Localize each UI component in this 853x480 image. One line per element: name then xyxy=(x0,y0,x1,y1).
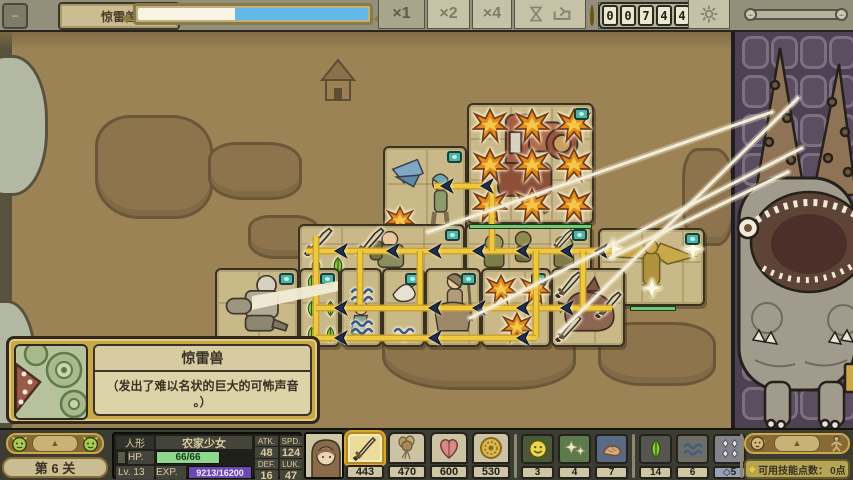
sword-icon xyxy=(555,314,583,342)
bouquet-icon xyxy=(394,435,420,461)
stage-label: 第 6 关 xyxy=(2,457,108,478)
luk-value: 47 xyxy=(280,470,302,480)
mech-block[interactable] xyxy=(467,103,594,224)
combo-arrow-icon xyxy=(424,328,444,348)
token-smiley xyxy=(521,434,554,464)
hp-value: 66/66 xyxy=(156,451,220,464)
game-screen: − 惊雷兽 ◆ ◆ ×1 ×2 ×4 00744 − − xyxy=(0,0,853,480)
hp-remaining-segment xyxy=(235,8,368,20)
sword-icon xyxy=(595,290,623,318)
wave-icon xyxy=(682,438,704,460)
enemy-tooltip: 惊雷兽 （发出了难以名状的巨大的可怖声音 。） xyxy=(6,336,320,424)
sword-icon xyxy=(352,435,378,461)
worm-icon xyxy=(600,437,624,461)
medal-icon xyxy=(478,435,504,461)
monkey-face-icon xyxy=(749,435,766,452)
lock-badge-icon xyxy=(574,108,589,120)
top-bar: − 惊雷兽 ◆ ◆ ×1 ×2 ×4 00744 − − xyxy=(0,0,853,32)
medal-count: 530 xyxy=(472,465,510,479)
combo-arrow-icon xyxy=(476,176,496,196)
hut-structure xyxy=(318,58,358,106)
coin-counter: 00744 xyxy=(598,2,686,29)
minimize-button[interactable]: − xyxy=(2,3,28,29)
ally-switch-plaque: ▲ xyxy=(744,433,850,454)
lock-badge-icon xyxy=(461,273,476,285)
slider-knob-right[interactable]: − xyxy=(835,8,848,21)
gear-icon xyxy=(699,4,719,24)
swan-block[interactable] xyxy=(382,268,425,347)
hp-elapsed-segment xyxy=(138,8,235,20)
status-chip xyxy=(118,452,125,463)
token-worm xyxy=(595,434,628,464)
demon-face-icon xyxy=(82,435,99,452)
map-shade xyxy=(0,30,853,50)
circle-minus-icon: − xyxy=(11,9,18,23)
luk-label: LUK. xyxy=(280,459,302,469)
sparkle-icon xyxy=(563,437,587,461)
burst-icon xyxy=(472,108,508,144)
enemy-switch-plaque: ▲ xyxy=(6,433,104,454)
token-wave xyxy=(676,434,709,464)
enemy-portrait xyxy=(14,344,88,420)
block-hp-bar xyxy=(630,306,676,311)
diamond-icon: ◆ xyxy=(748,464,756,475)
lock-badge-icon xyxy=(531,273,546,285)
bottom-bar: ▲ 第 6 关 人形 农家少女 HP. 66/66 Lv. 13 EXP. 92… xyxy=(0,428,853,480)
skill-points-button[interactable]: ◆ 可用技能点数： 0点 xyxy=(744,459,850,479)
burst-icon xyxy=(556,188,592,224)
mesa-terrain xyxy=(95,115,213,219)
smiley-count: 3 xyxy=(521,466,554,479)
token-sparkle xyxy=(558,434,591,464)
sword-count: 443 xyxy=(346,465,384,479)
bouquet-count: 470 xyxy=(388,465,426,479)
seed-icon xyxy=(303,274,320,291)
divider xyxy=(514,434,517,478)
combo-arrow-icon xyxy=(330,241,350,261)
lock-badge-icon xyxy=(405,273,420,285)
spd-label: SPD. xyxy=(280,436,302,446)
worm-count: 7 xyxy=(595,466,628,479)
hp-label: HP. xyxy=(128,451,154,464)
combo-arrow-icon xyxy=(512,241,532,261)
combo-arrow-icon xyxy=(330,298,350,318)
lock-badge-icon xyxy=(445,229,460,241)
enemy-panel xyxy=(731,30,853,428)
auto-repeat-button[interactable] xyxy=(514,0,586,29)
monster-thunder-beast[interactable] xyxy=(735,30,853,428)
level-value: Lv. 13 xyxy=(116,466,154,479)
wave-icon xyxy=(392,322,416,346)
expand-enemy-info-button[interactable]: ▲ xyxy=(32,435,78,452)
wave-icon xyxy=(349,314,375,340)
enemy-tooltip-body: 惊雷兽 （发出了难以名状的巨大的可怖声音 。） xyxy=(93,344,312,416)
burst-icon xyxy=(556,148,592,184)
sword-icon xyxy=(555,270,583,298)
combo-arrow-icon xyxy=(424,241,444,261)
speed-x2-button[interactable]: ×2 xyxy=(427,0,470,29)
combo-arrow-icon xyxy=(330,328,350,348)
coin-digit: 4 xyxy=(656,5,672,26)
heart-count: 600 xyxy=(430,465,468,479)
combo-arrow-icon xyxy=(436,176,456,196)
coin-icon xyxy=(590,5,594,26)
wave-count: 6 xyxy=(676,466,709,479)
combo-arrow-icon xyxy=(512,298,532,318)
star-icon xyxy=(642,278,662,298)
water-terrain xyxy=(0,55,48,196)
item-medal-button[interactable] xyxy=(472,432,510,464)
combo-arrow-icon xyxy=(382,241,402,261)
divider xyxy=(632,434,635,478)
combo-arrow-icon xyxy=(590,241,610,261)
speed-x4-button[interactable]: ×4 xyxy=(472,0,512,29)
combo-arrow-icon xyxy=(556,298,576,318)
slider-knob-left[interactable]: − xyxy=(744,8,757,21)
item-heart-button[interactable] xyxy=(430,432,468,464)
def-value: 16 xyxy=(255,470,278,480)
enemy-tooltip-desc: （发出了难以名状的巨大的可怖声音 。） xyxy=(95,372,310,410)
heart-icon xyxy=(436,435,462,461)
diamond-deco-icon: ◆ xyxy=(122,10,132,26)
lock-badge-icon xyxy=(320,273,335,285)
character-name: 农家少女 xyxy=(156,436,252,449)
lock-badge-icon xyxy=(447,151,462,163)
burst-icon xyxy=(514,188,550,224)
loop-icon xyxy=(551,5,573,23)
smiley-icon xyxy=(526,437,550,461)
combo-arrow-icon xyxy=(424,298,444,318)
character-panel: 人形 农家少女 HP. 66/66 Lv. 13 EXP. 9213/16200… xyxy=(112,432,302,479)
item-bouquet-button[interactable] xyxy=(388,432,426,464)
race-label: 人形 xyxy=(116,436,154,449)
enemy-hp-bar: ◆ ◆ xyxy=(133,3,373,25)
burst-icon xyxy=(514,148,550,184)
block-hp-bar xyxy=(469,224,592,229)
coin-digit: 7 xyxy=(638,5,654,26)
speed-x1-button[interactable]: ×1 xyxy=(378,0,425,29)
exp-value: 9213/16200 xyxy=(188,466,252,479)
token-seed xyxy=(639,434,672,464)
hourglass-icon xyxy=(527,5,545,23)
enemy-tooltip-title: 惊雷兽 xyxy=(95,346,310,372)
lock-badge-icon xyxy=(572,229,587,241)
star-man-icon xyxy=(828,435,845,452)
burst-icon xyxy=(514,108,550,144)
coin-digit: 0 xyxy=(620,5,636,26)
combo-arrow-icon xyxy=(512,328,532,348)
seed-icon xyxy=(645,438,667,460)
spd-value: 124 xyxy=(280,447,302,458)
sparkle-count: 4 xyxy=(558,466,591,479)
combo-arrow-icon xyxy=(468,298,488,318)
def-label: DEF. xyxy=(255,459,278,469)
mesa-terrain xyxy=(208,142,302,200)
lock-badge-icon xyxy=(685,233,700,245)
atk-value: 48 xyxy=(255,447,278,458)
coin-digits: 00744 xyxy=(598,2,694,29)
combo-arrow-icon xyxy=(468,241,488,261)
atk-label: ATK. xyxy=(255,436,278,446)
expand-party-info-button[interactable]: ▲ xyxy=(774,435,820,452)
combo-arrow-icon xyxy=(556,241,576,261)
demon-face-icon xyxy=(11,435,28,452)
divider xyxy=(740,434,743,478)
diamonds-icon xyxy=(718,437,742,461)
zoom-slider[interactable]: − − xyxy=(744,9,848,20)
seed-count: 14 xyxy=(639,466,672,479)
exp-label: EXP. xyxy=(156,466,186,479)
character-avatar[interactable] xyxy=(304,432,344,479)
wave-icon xyxy=(349,282,375,308)
settings-button[interactable] xyxy=(688,0,730,29)
lock-badge-icon xyxy=(279,273,294,285)
item-sword-button[interactable] xyxy=(346,432,384,464)
seed-icon xyxy=(303,300,320,317)
coin-digit: 0 xyxy=(602,5,618,26)
